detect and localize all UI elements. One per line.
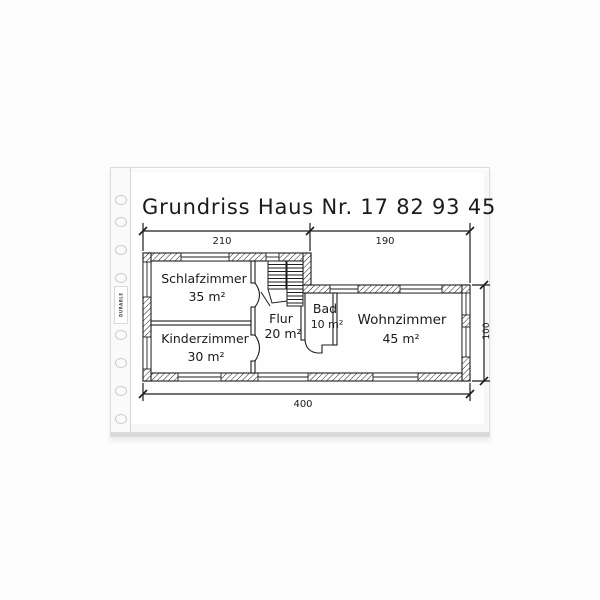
room-label-wohnzimmer: Wohnzimmer (358, 312, 447, 328)
room-area-schlafzimmer: 35 m² (188, 289, 225, 304)
room-label-flur: Flur (269, 311, 294, 326)
room-area-wohnzimmer: 45 m² (382, 331, 419, 346)
dim-top-left-label: 210 (212, 236, 231, 247)
room-label-schlafzimmer: Schlafzimmer (161, 271, 247, 286)
dim-bottom-label: 400 (293, 399, 312, 410)
stairs (261, 261, 303, 306)
door-arcs (255, 283, 260, 361)
floor-plan-drawing: Grundriss Haus Nr. 17 82 93 45 210 190 (0, 0, 600, 600)
room-label-kinderzimmer: Kinderzimmer (161, 331, 249, 346)
dim-top-right-label: 190 (375, 236, 394, 247)
room-area-bad: 10 m² (311, 318, 344, 331)
bad-door-outline (305, 340, 333, 353)
room-label-bad: Bad (313, 301, 337, 316)
room-area-kinderzimmer: 30 m² (187, 349, 224, 364)
dim-right-label: 100 (482, 322, 492, 339)
photo-background: DURABLE Grundriss Haus Nr. 17 82 93 45 (0, 0, 600, 600)
plan-title: Grundriss Haus Nr. 17 82 93 45 (142, 195, 496, 219)
room-area-flur: 20 m² (264, 326, 301, 341)
